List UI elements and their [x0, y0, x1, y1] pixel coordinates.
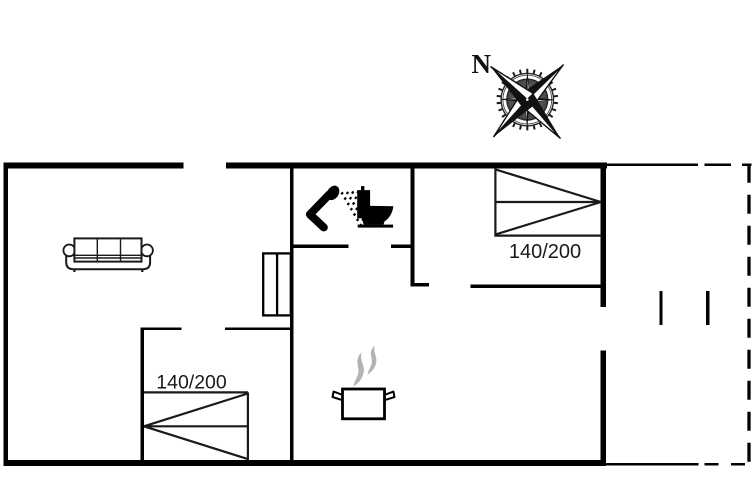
svg-text:140/200: 140/200: [509, 241, 581, 263]
svg-text:N: N: [472, 49, 492, 79]
svg-text:140/200: 140/200: [156, 372, 227, 394]
